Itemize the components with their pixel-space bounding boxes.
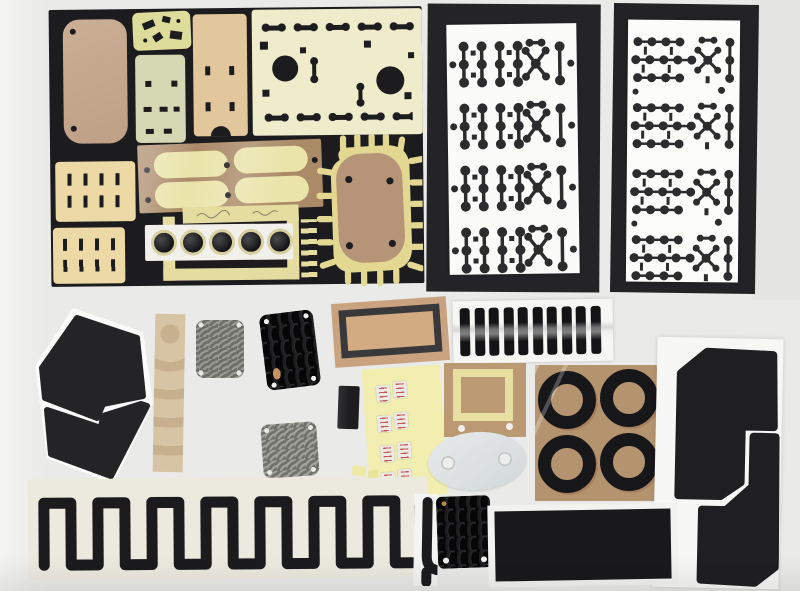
dot-sheet-small [626, 20, 740, 283]
cream-slot-pad-a [55, 161, 136, 222]
comb-teeth [301, 219, 318, 277]
sticker [392, 381, 407, 399]
black-keypad-a [259, 309, 322, 391]
glossy-strip-panel [452, 299, 613, 364]
gray-keypad-b [260, 421, 320, 479]
square-frame-gasket [444, 363, 526, 437]
lens [151, 230, 177, 256]
sticker [377, 415, 392, 433]
reflection-band [452, 299, 613, 364]
background-shade-top-right [752, 0, 800, 300]
yellow-scrap [351, 465, 366, 477]
green-slot-pad [135, 55, 186, 144]
hex-pad [35, 306, 155, 486]
background-shade-bottom [0, 556, 800, 591]
tan-phone-pad [63, 19, 128, 144]
dot-cluster-pattern-large [446, 23, 579, 275]
slot-row [67, 173, 123, 186]
gray-keypad-a [196, 320, 244, 378]
black-block [337, 386, 359, 430]
tan-slot-pad [193, 14, 248, 137]
slot-row [68, 195, 124, 208]
kit-board [49, 6, 425, 287]
plastic-sheen [535, 365, 661, 501]
plastic-sheen [137, 139, 323, 214]
hole [458, 425, 465, 432]
hole [441, 456, 456, 471]
lens [238, 229, 264, 255]
sticker [376, 385, 391, 403]
yellow-scrap [368, 469, 379, 478]
lens [267, 228, 293, 254]
tan-backing-strip [153, 314, 186, 472]
dot-cluster-pattern-small [626, 20, 740, 283]
cutout-marks [132, 10, 192, 51]
brown-stadium-strip [137, 139, 323, 214]
yellow-cutout-pad [132, 10, 192, 51]
frame-outline [453, 369, 513, 421]
slot-row [63, 238, 115, 251]
ring-pack [535, 365, 661, 501]
hex-pad-wrap [35, 306, 155, 486]
spiky-blob-gasket [316, 134, 424, 287]
display-frame-gasket [331, 296, 450, 368]
dot-sheet-large [446, 23, 579, 275]
sticker [380, 445, 395, 463]
slot-marks [135, 55, 186, 144]
slot-marks [193, 14, 248, 137]
sticker [394, 412, 409, 430]
small-cutouts [252, 8, 423, 136]
frame-window [338, 304, 442, 359]
sticker [397, 442, 412, 460]
hole [71, 126, 77, 132]
slot-row [63, 259, 115, 272]
hole [497, 452, 512, 467]
lens [209, 229, 235, 255]
hole [506, 423, 513, 430]
cream-slot-pad-b [53, 227, 126, 284]
hole [70, 29, 76, 35]
cream-plate [252, 8, 423, 136]
lens [180, 229, 206, 255]
photo-stage [0, 0, 800, 591]
lens-strip [145, 223, 293, 261]
